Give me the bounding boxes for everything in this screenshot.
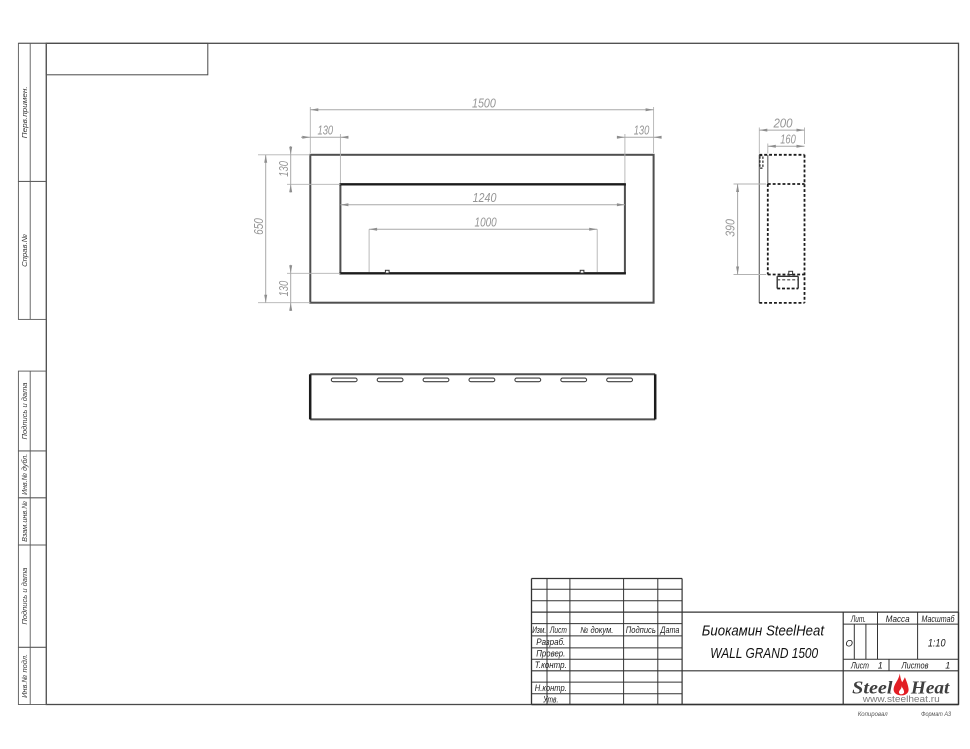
svg-text:200: 200 bbox=[773, 116, 794, 131]
svg-text:130: 130 bbox=[634, 123, 650, 138]
svg-text:1500: 1500 bbox=[472, 95, 496, 110]
svg-text:130: 130 bbox=[276, 280, 291, 296]
svg-text:Лит.: Лит. bbox=[850, 614, 866, 624]
svg-text:1000: 1000 bbox=[475, 215, 498, 230]
svg-text:Утв.: Утв. bbox=[543, 695, 559, 705]
svg-text:Н.контр.: Н.контр. bbox=[535, 683, 567, 693]
svg-text:130: 130 bbox=[276, 161, 291, 177]
svg-text:Разраб.: Разраб. bbox=[536, 637, 565, 647]
svg-text:Т.контр.: Т.контр. bbox=[535, 660, 567, 670]
svg-text:1: 1 bbox=[945, 661, 950, 671]
svg-text:Инв.№ дубл.: Инв.№ дубл. bbox=[20, 454, 29, 495]
svg-text:О: О bbox=[846, 638, 854, 649]
svg-text:Перв.примен.: Перв.примен. bbox=[20, 86, 29, 138]
svg-text:Подпись и дата: Подпись и дата bbox=[20, 568, 29, 625]
svg-text:Формат А3: Формат А3 bbox=[921, 711, 951, 718]
svg-text:Лист: Лист bbox=[549, 625, 567, 635]
svg-text:Взам.инв.№: Взам.инв.№ bbox=[20, 501, 29, 542]
svg-text:Биокамин SteelHeat: Биокамин SteelHeat bbox=[702, 622, 825, 639]
svg-text:Изм.: Изм. bbox=[532, 625, 546, 635]
svg-text:№ докум.: № докум. bbox=[580, 625, 613, 635]
svg-text:1:10: 1:10 bbox=[928, 638, 946, 650]
svg-text:650: 650 bbox=[251, 218, 266, 235]
svg-text:Провер.: Провер. bbox=[536, 649, 565, 659]
svg-text:Дата: Дата bbox=[660, 625, 680, 635]
svg-text:Копировал: Копировал bbox=[858, 711, 888, 718]
svg-text:Справ.№: Справ.№ bbox=[20, 234, 29, 267]
svg-text:390: 390 bbox=[723, 219, 738, 237]
svg-text:160: 160 bbox=[780, 132, 796, 147]
svg-text:Листов: Листов bbox=[901, 661, 929, 671]
svg-text:1: 1 bbox=[878, 661, 883, 671]
svg-text:Лист: Лист bbox=[850, 661, 869, 671]
svg-text:Масштаб: Масштаб bbox=[922, 614, 956, 624]
svg-text:WALL GRAND 1500: WALL GRAND 1500 bbox=[710, 645, 818, 662]
svg-text:Подпись: Подпись bbox=[626, 625, 656, 635]
svg-text:130: 130 bbox=[318, 123, 334, 138]
svg-text:1240: 1240 bbox=[473, 190, 497, 205]
svg-text:www.steelheat.ru: www.steelheat.ru bbox=[862, 694, 940, 705]
svg-text:Масса: Масса bbox=[886, 614, 910, 624]
svg-text:Подпись и дата: Подпись и дата bbox=[20, 383, 29, 440]
svg-text:Инв.№ подл.: Инв.№ подл. bbox=[20, 654, 29, 698]
